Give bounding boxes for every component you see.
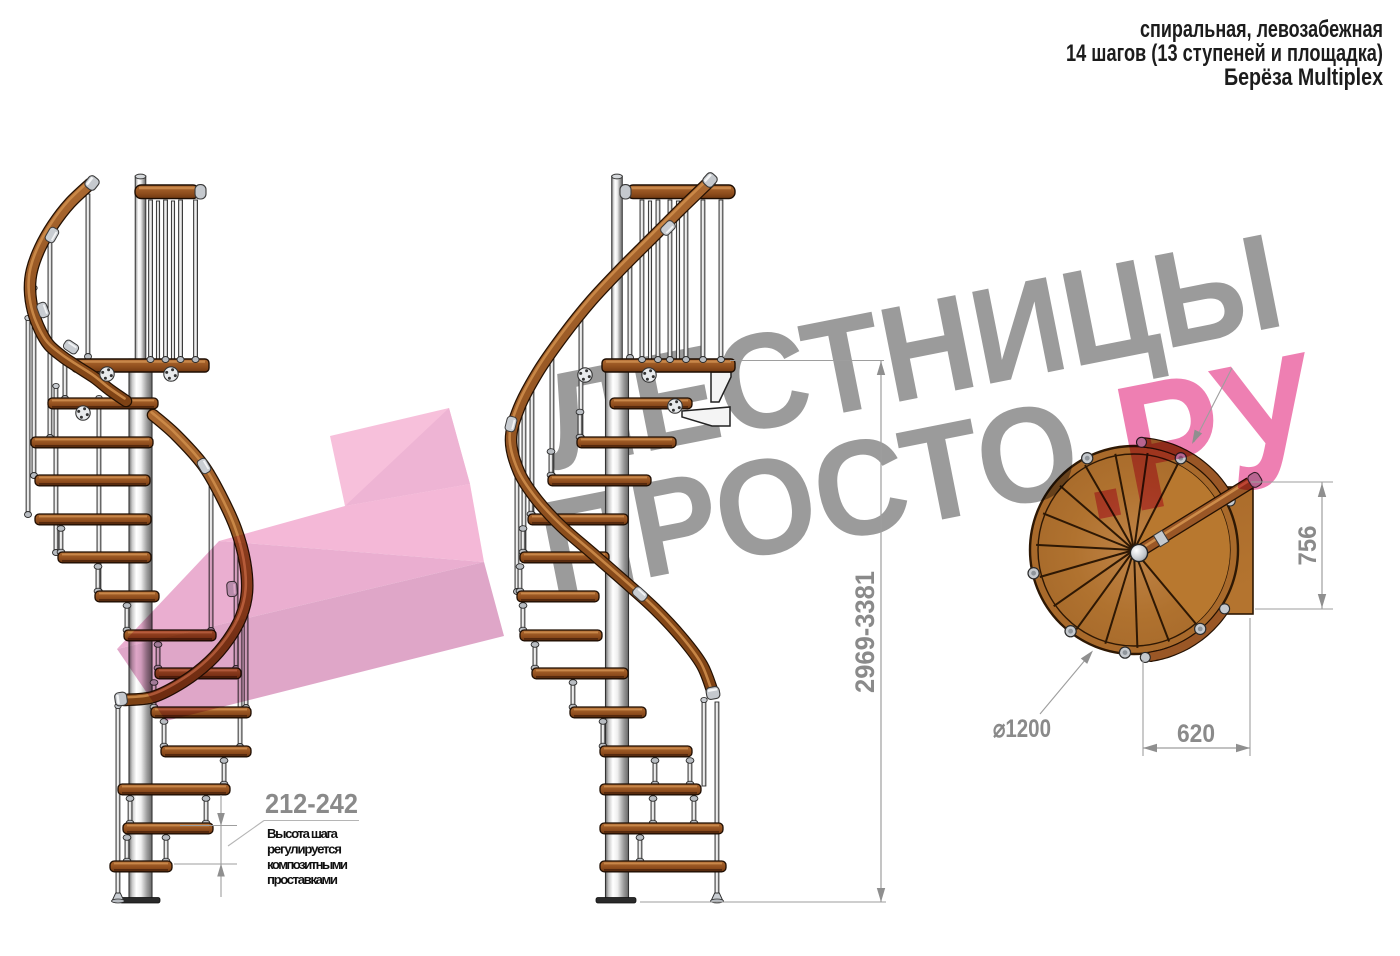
svg-text:Берёза Multiplex: Берёза Multiplex — [1224, 64, 1384, 91]
svg-text:2969-3381: 2969-3381 — [850, 571, 880, 693]
svg-text:спиральная, левозабежная: спиральная, левозабежная — [1140, 16, 1383, 43]
svg-text:14 шагов (13 ступеней и площад: 14 шагов (13 ступеней и площадка) — [1066, 40, 1383, 67]
svg-text:Высота шагарегулируетсякомпози: Высота шагарегулируетсякомпозитнымипрост… — [267, 826, 348, 887]
svg-text:212-242: 212-242 — [265, 788, 358, 819]
svg-text:620: 620 — [1177, 720, 1215, 748]
svg-text:⌀1200: ⌀1200 — [993, 715, 1051, 743]
svg-text:756: 756 — [1294, 526, 1322, 566]
